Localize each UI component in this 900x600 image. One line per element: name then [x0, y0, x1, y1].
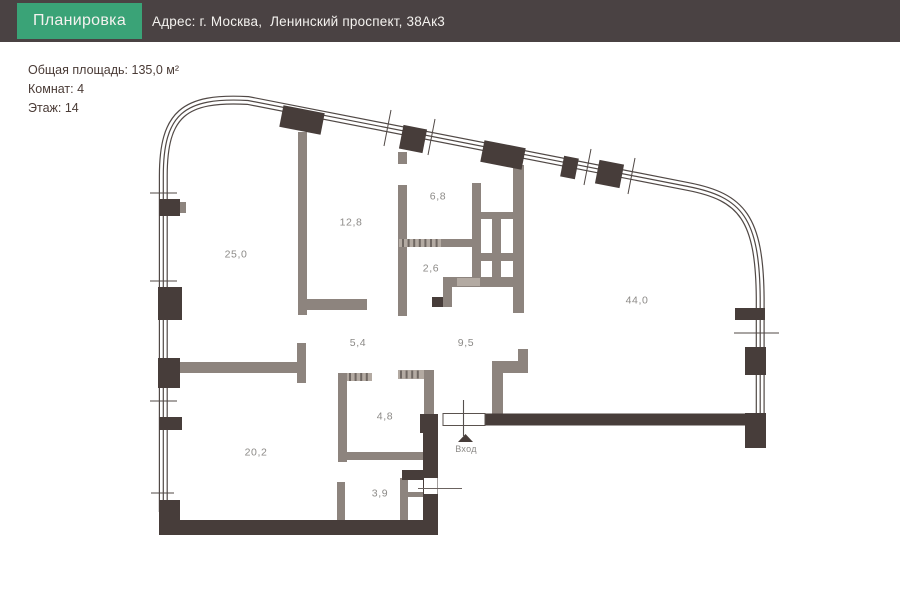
floor-plan-page: Планировка Адрес: г. Москва, Ленинский п… — [0, 0, 900, 600]
entrance-arrow-icon — [458, 434, 473, 442]
room-area-12-8: 12,8 — [340, 217, 363, 229]
room-area-2-6: 2,6 — [423, 263, 439, 275]
structural-columns — [158, 105, 766, 535]
room-area-4-8: 4,8 — [377, 411, 393, 423]
room-area-3-9: 3,9 — [372, 488, 388, 500]
interior-walls — [178, 132, 528, 522]
entrance-label: Вход — [455, 444, 477, 454]
room-area-6-8: 6,8 — [430, 191, 446, 203]
floor-plan-drawing: Вход 25,0 12,8 6,8 2,6 44,0 5,4 9,5 4,8 … — [0, 0, 900, 600]
room-area-20-2: 20,2 — [245, 447, 268, 459]
room-area-5-4: 5,4 — [350, 337, 366, 349]
entrance-door: Вход — [443, 400, 485, 454]
room-area-44-0: 44,0 — [626, 295, 649, 307]
room-area-25-0: 25,0 — [225, 249, 248, 261]
room-area-9-5: 9,5 — [458, 337, 474, 349]
